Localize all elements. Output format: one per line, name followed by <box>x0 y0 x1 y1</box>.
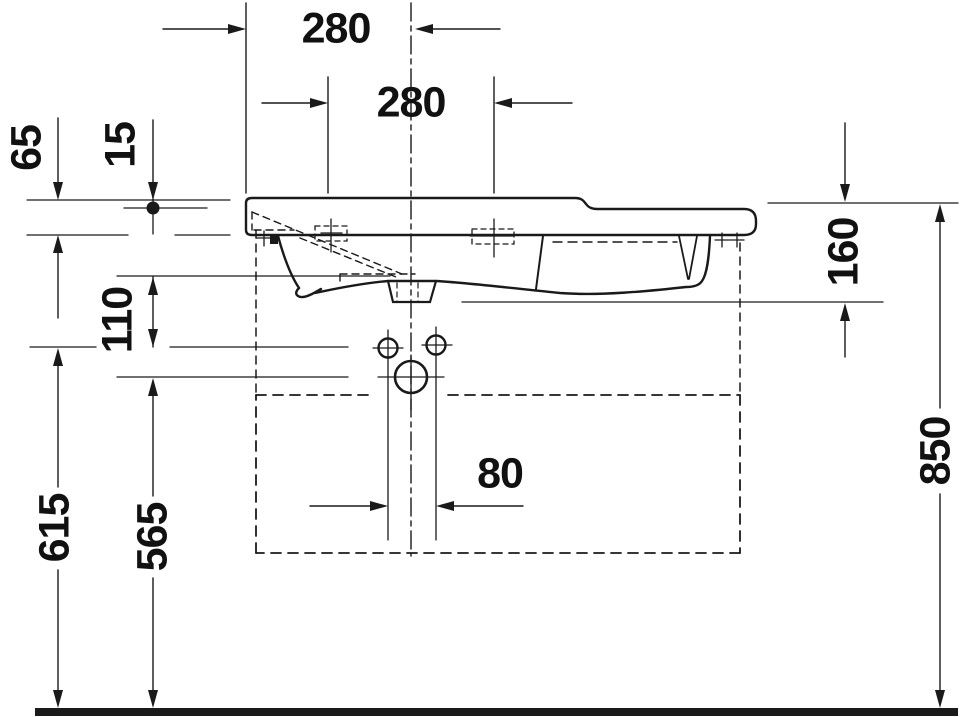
bracket-detail-left <box>256 231 278 246</box>
floor-line <box>35 708 958 716</box>
dimension-110 <box>148 277 158 347</box>
dim-label-80: 80 <box>477 453 523 496</box>
reference-lines <box>27 200 958 377</box>
dim-label-160: 160 <box>823 218 866 287</box>
dim-label-850: 850 <box>915 414 958 489</box>
dim-label-65: 65 <box>6 125 49 171</box>
dim-label-15: 15 <box>100 122 143 168</box>
drawing-canvas <box>0 0 976 717</box>
fixing-hole-right <box>470 219 514 257</box>
dim-label-110: 110 <box>97 287 140 353</box>
dim-label-280-holes: 280 <box>377 82 446 125</box>
dimension-80 <box>310 501 523 511</box>
dim-label-615: 615 <box>34 491 77 566</box>
dimension-65 <box>53 118 63 318</box>
drain-flange <box>388 281 436 302</box>
hidden-overflow-lines <box>252 212 677 283</box>
technical-drawing: 280 280 65 15 110 615 565 80 160 850 <box>0 0 976 717</box>
tap-hole-marker <box>124 187 207 234</box>
dimension-15 <box>148 120 158 200</box>
dim-label-565: 565 <box>132 500 175 575</box>
dim-label-280-overall: 280 <box>302 8 371 51</box>
mounting-box-outline <box>256 230 740 553</box>
